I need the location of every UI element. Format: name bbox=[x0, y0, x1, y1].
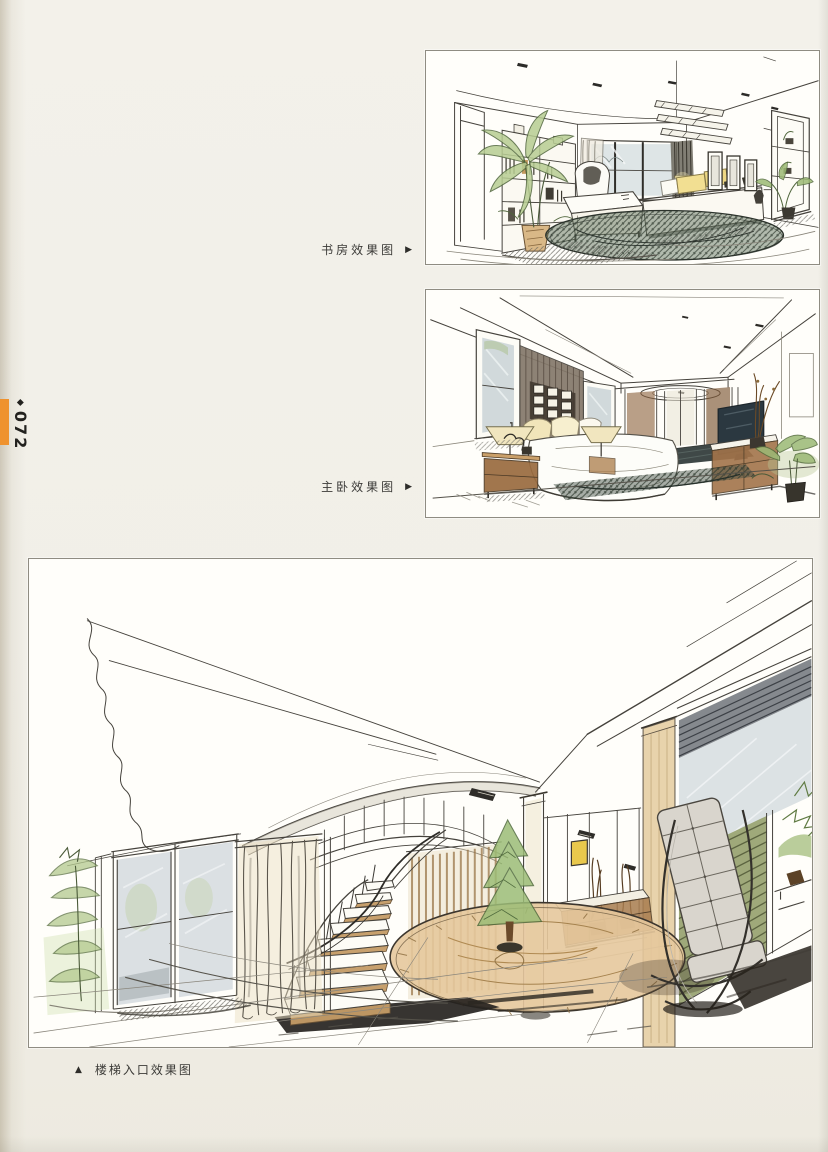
right-triangle-icon: ▶ bbox=[405, 246, 412, 255]
caption-master-bedroom: 主卧效果图 ▶ bbox=[321, 481, 412, 493]
page-edge-shadow-bottom bbox=[0, 1136, 828, 1152]
book-page: { "page": { "number": "072", "marker_gly… bbox=[0, 0, 828, 1152]
study-ceiling-vents bbox=[517, 63, 779, 110]
stair-entrance-sketch-drawing bbox=[29, 559, 812, 1047]
study-display-shelf bbox=[756, 110, 815, 229]
figure-study bbox=[425, 50, 820, 265]
figure-caption-label: 楼梯入口效果图 bbox=[95, 1064, 193, 1076]
figure-caption-label: 书房效果图 bbox=[321, 244, 396, 256]
page-number: 072 bbox=[11, 411, 30, 450]
stair-curtains bbox=[235, 834, 331, 1023]
diamond-icon: ◆ bbox=[16, 399, 26, 406]
spine-accent-bar bbox=[0, 399, 9, 445]
right-triangle-icon: ▶ bbox=[405, 483, 412, 492]
study-sketch-drawing bbox=[426, 51, 819, 264]
caption-study: 书房效果图 ▶ bbox=[321, 244, 412, 256]
page-edge-shadow-left bbox=[0, 0, 26, 1152]
figure-caption-label: 主卧效果图 bbox=[321, 481, 396, 493]
study-wall-frames bbox=[708, 152, 757, 191]
figure-stair-entrance bbox=[28, 558, 813, 1048]
up-triangle-icon: ▲ bbox=[75, 1066, 82, 1075]
caption-stair-entrance: ▲ 楼梯入口效果图 bbox=[75, 1064, 193, 1076]
master-bedroom-sketch-drawing bbox=[426, 290, 819, 517]
figure-master-bedroom bbox=[425, 289, 820, 518]
page-number-vertical: ◆ 072 bbox=[11, 399, 30, 450]
